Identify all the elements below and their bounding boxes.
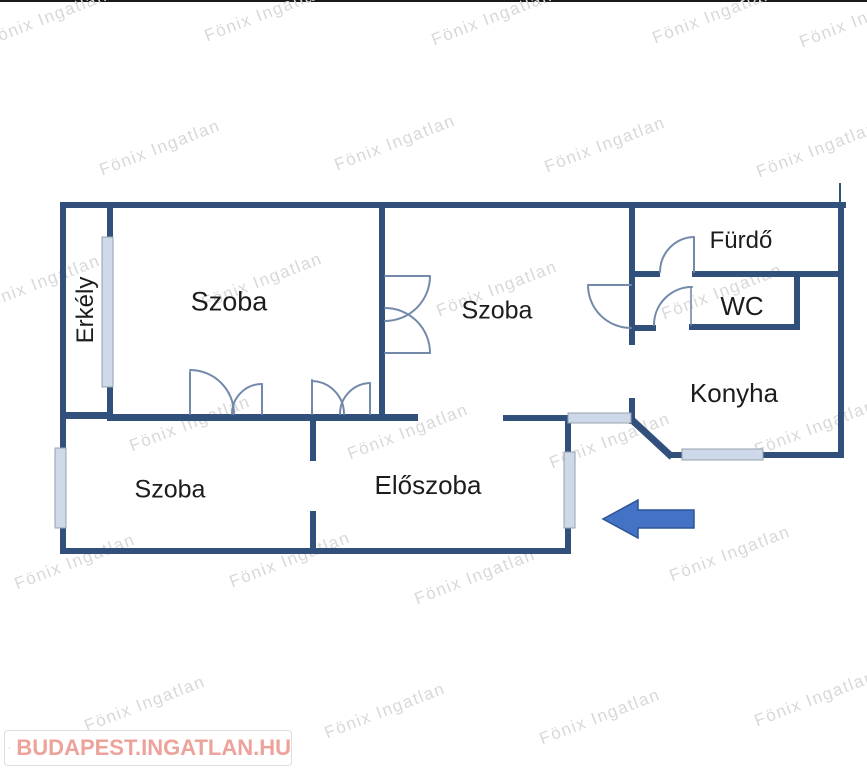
- wall-bathroom-bottom-right: [692, 271, 843, 277]
- room-label-eloszoba: Előszoba: [375, 472, 482, 498]
- room-label-furdo: Fürdő: [710, 229, 773, 253]
- wall-top: [60, 202, 846, 208]
- wall-lowerroom-bottom: [60, 548, 316, 554]
- wall-upper-rooms-bottom: [107, 414, 418, 421]
- wall-wc-bottom: [689, 324, 800, 330]
- wall-hall-bottom-stub: [629, 325, 656, 331]
- wall-hallway-top: [503, 415, 570, 421]
- wall-kitchen-diagonal: [632, 420, 672, 457]
- brand-text: BUDAPEST.INGATLAN.HU: [16, 735, 291, 761]
- room-label-szoba-middle: Szoba: [462, 299, 533, 324]
- wall-lower-divider-top: [310, 421, 316, 461]
- wall-right: [838, 202, 844, 458]
- entrance-door-panel: [564, 452, 575, 528]
- room-label-szoba-upper-left: Szoba: [191, 289, 268, 316]
- wall-bathroom-bottom-left: [629, 271, 660, 277]
- kitchen-window: [682, 449, 763, 460]
- house-icon: [9, 734, 10, 762]
- doors: [190, 237, 694, 414]
- door-middle-room: [588, 285, 631, 328]
- door-bathroom: [660, 237, 694, 272]
- entrance-arrow: [603, 500, 694, 538]
- room-label-konyha: Konyha: [690, 380, 778, 406]
- room-label-szoba-lower-left: Szoba: [135, 478, 206, 503]
- room-label-wc: WC: [720, 293, 763, 319]
- brand-bar: BUDAPEST.INGATLAN.HU: [4, 730, 292, 766]
- wall-wc-right: [794, 271, 800, 328]
- balcony-window: [102, 237, 113, 387]
- wall-left-upper: [60, 202, 66, 418]
- double-door-between-upper-rooms: [385, 276, 430, 353]
- hallway-top-window: [568, 413, 631, 423]
- wall-lower-divider-bottom: [310, 511, 316, 554]
- floorplan-page: Fönix IngatlanFönix IngatlanFönix Ingatl…: [0, 0, 867, 768]
- double-door-upper-to-lower-room: [190, 370, 262, 414]
- room-label-erkely: Erkély: [74, 277, 98, 344]
- door-wc: [654, 287, 692, 325]
- wall-hallway-bottom: [310, 548, 571, 554]
- double-door-upper-to-hallway: [312, 380, 370, 414]
- wall-antenna-stub: [839, 183, 841, 204]
- wall-balcony-bottom: [60, 412, 113, 419]
- wall-upper-rooms-divider: [379, 202, 385, 421]
- lowerroom-window: [55, 448, 66, 528]
